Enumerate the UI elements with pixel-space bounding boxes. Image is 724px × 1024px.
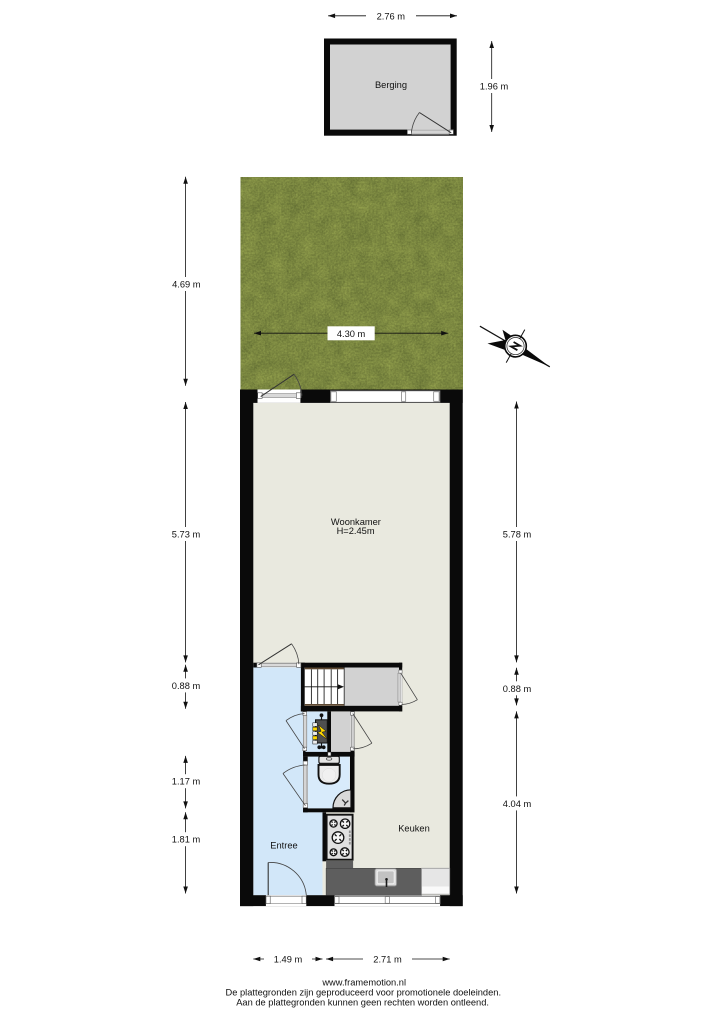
svg-text:1.49 m: 1.49 m	[274, 955, 303, 965]
svg-text:4.30 m: 4.30 m	[337, 329, 366, 339]
svg-text:Keuken: Keuken	[398, 824, 430, 834]
svg-text:Berging: Berging	[375, 80, 407, 90]
svg-text:Aan de plattegronden kunnen ge: Aan de plattegronden kunnen geen rechten…	[236, 998, 489, 1008]
svg-text:1.17 m: 1.17 m	[172, 777, 201, 787]
svg-text:0.88 m: 0.88 m	[172, 681, 201, 691]
svg-text:4.04 m: 4.04 m	[503, 799, 532, 809]
svg-text:5.78 m: 5.78 m	[503, 530, 532, 540]
svg-text:2.76 m: 2.76 m	[377, 12, 406, 22]
svg-text:1.96 m: 1.96 m	[480, 82, 509, 92]
svg-text:5.73 m: 5.73 m	[172, 530, 201, 540]
svg-text:1.81 m: 1.81 m	[172, 835, 201, 845]
svg-text:0.88 m: 0.88 m	[503, 684, 532, 694]
svg-text:2.71 m: 2.71 m	[373, 955, 402, 965]
svg-text:H=2.45m: H=2.45m	[337, 526, 375, 536]
svg-text:De plattegronden zijn geproduc: De plattegronden zijn geproduceerd voor …	[226, 987, 501, 997]
svg-text:4.69 m: 4.69 m	[172, 280, 201, 290]
svg-text:Entree: Entree	[270, 840, 297, 850]
svg-text:www.framemotion.nl: www.framemotion.nl	[321, 978, 406, 988]
